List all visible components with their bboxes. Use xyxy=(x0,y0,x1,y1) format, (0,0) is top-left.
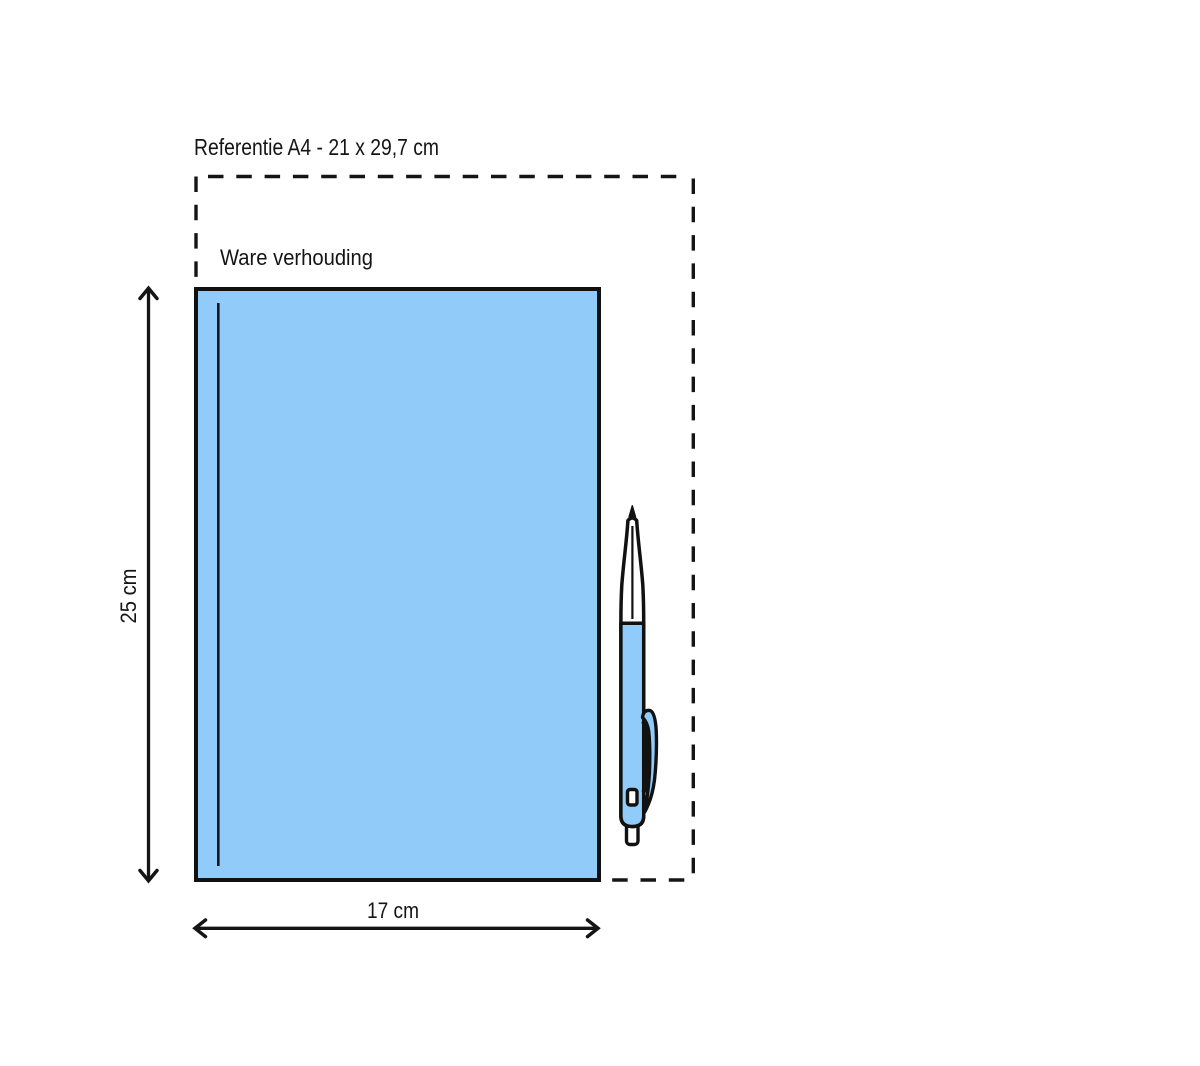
svg-text:25 cm: 25 cm xyxy=(116,569,141,624)
svg-text:Referentie A4 - 21 x 29,7 cm: Referentie A4 - 21 x 29,7 cm xyxy=(194,134,439,160)
svg-text:17 cm: 17 cm xyxy=(367,898,419,923)
svg-text:Ware verhouding: Ware verhouding xyxy=(220,245,373,270)
